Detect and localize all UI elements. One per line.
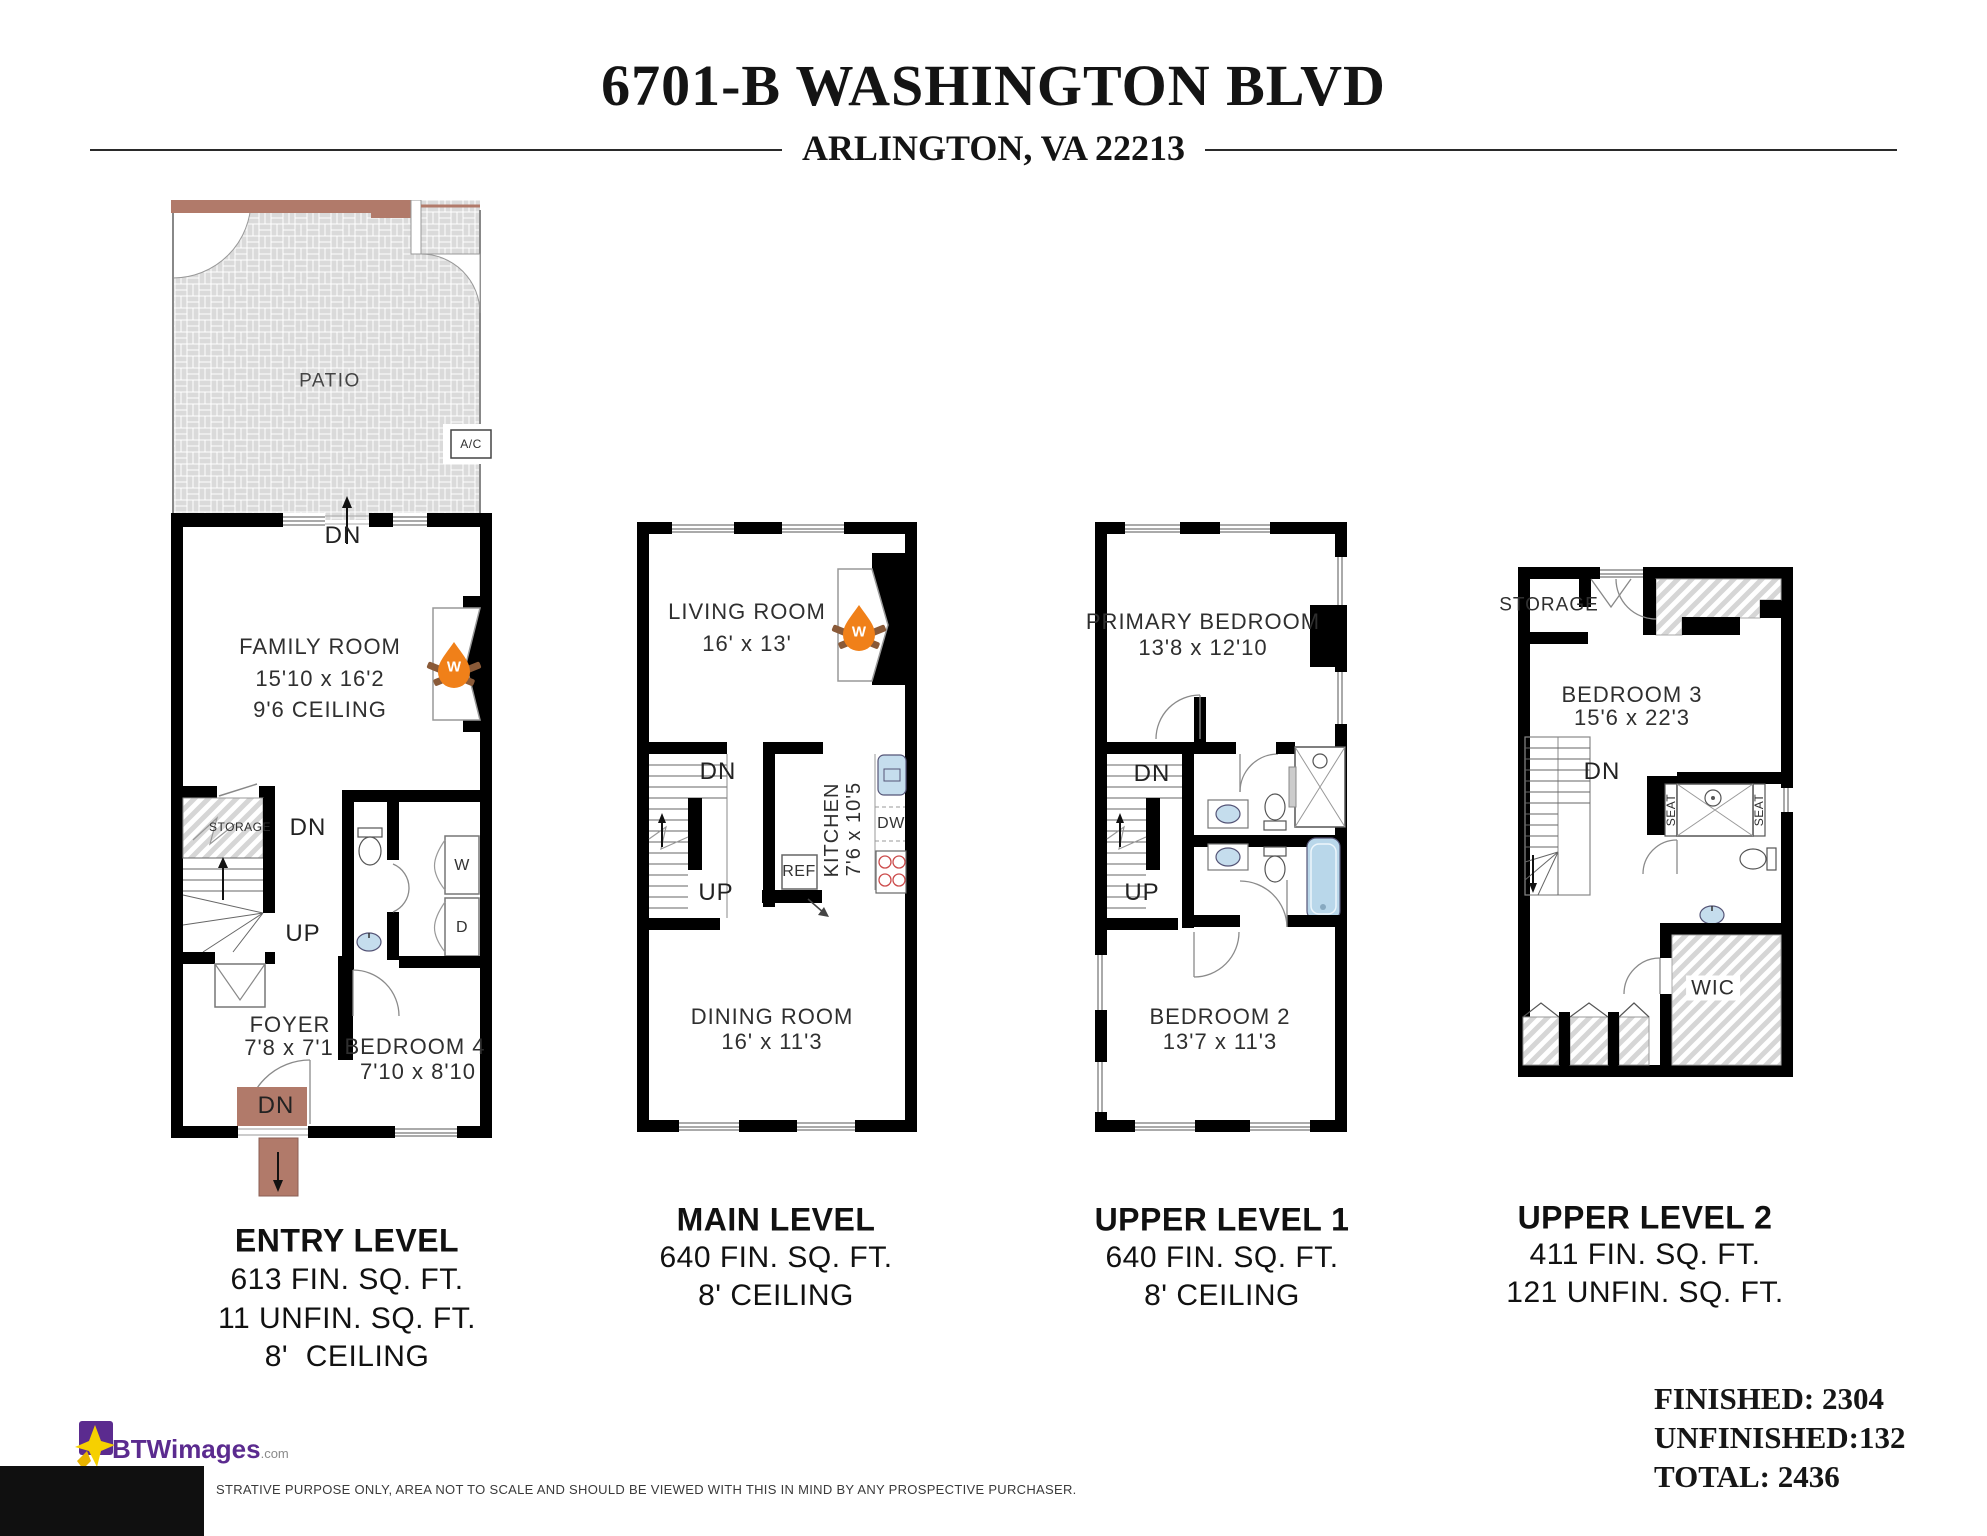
window (395, 1126, 457, 1138)
washer-label: W (454, 858, 470, 874)
toilet-icon (1264, 847, 1286, 882)
floor-plan-page: 6701-B WASHINGTON BLVD ARLINGTON, VA 222… (0, 0, 1987, 1536)
disclaimer-text: STRATIVE PURPOSE ONLY, AREA NOT TO SCALE… (216, 1482, 1077, 1497)
total-finished: FINISHED: 2304 (1654, 1379, 1905, 1418)
fireplace-w-label: W (852, 625, 866, 640)
window (393, 513, 427, 527)
bedroom4-dim: 7'10 x 8'10 (360, 1061, 476, 1083)
total-unfinished: UNFINISHED:132 (1654, 1418, 1905, 1457)
up-label-upper1: UP (1124, 881, 1159, 905)
page-title: 6701-B WASHINGTON BLVD (0, 52, 1987, 119)
ac-label: A/C (460, 438, 482, 450)
living-room-dim: 16' x 13' (702, 633, 792, 655)
foyer-label: FOYER (250, 1014, 331, 1036)
ref-label: REF (782, 864, 816, 880)
closet (215, 964, 265, 1007)
entry-level-finished: 613 FIN. SQ. FT. (230, 1263, 463, 1297)
bedroom4-label: BEDROOM 4 (344, 1036, 485, 1058)
sink-icon (878, 755, 906, 795)
primary-bedroom-door (1156, 695, 1206, 742)
laundry-closet (399, 790, 492, 968)
dn-label-patio: DN (325, 524, 362, 548)
dn-label-main: DN (700, 760, 737, 784)
dryer-label: D (456, 920, 468, 936)
storage-label-upper2: STORAGE (1499, 596, 1599, 615)
square-footage-totals: FINISHED: 2304 UNFINISHED:132 TOTAL: 243… (1654, 1379, 1905, 1496)
bedroom3-label: BEDROOM 3 (1561, 684, 1702, 706)
stairs (1525, 737, 1590, 895)
dn-label-upper2: DN (1584, 760, 1621, 784)
bathroom-bottom (1194, 838, 1347, 927)
kitchen-label: KITCHEN (822, 783, 842, 878)
unfinished-attic (1616, 579, 1781, 635)
dn-label-entry-door: DN (258, 1094, 295, 1118)
patio-area (171, 200, 499, 520)
page-subtitle: ARLINGTON, VA 22213 (782, 127, 1205, 169)
upper-level-1-caption: UPPER LEVEL 1 (1095, 1202, 1350, 1239)
upper-level-2-caption: UPPER LEVEL 2 (1518, 1200, 1773, 1237)
storage-label: STORAGE (209, 821, 271, 833)
bathtub-icon (1307, 838, 1340, 920)
seat-left-label: SEAT (1665, 794, 1677, 826)
bedroom3-dim: 15'6 x 22'3 (1574, 707, 1690, 729)
bright-mls-logo: brıght ✦ ™ MLS (0, 1466, 204, 1536)
dn-label-upper1: DN (1134, 762, 1171, 786)
bedroom2-label: BEDROOM 2 (1149, 1006, 1290, 1028)
vanity-sink-icon (1208, 844, 1248, 870)
dn-label-entry-stairs: DN (290, 816, 327, 840)
family-room-dim: 15'10 x 16'2 (255, 668, 384, 690)
family-room-ceiling: 9'6 CEILING (253, 699, 387, 721)
bathroom-top (1194, 742, 1347, 847)
sink-icon (1700, 906, 1724, 924)
stove-icon (876, 851, 906, 893)
seat-right-label: SEAT (1753, 794, 1765, 826)
dormers (1523, 1003, 1649, 1065)
window (283, 513, 325, 527)
title-divider: ARLINGTON, VA 22213 (90, 149, 1897, 193)
main-level-caption: MAIN LEVEL (677, 1202, 876, 1239)
living-room-label: LIVING ROOM (668, 601, 826, 623)
shower-icon (1665, 784, 1765, 836)
up-label-entry-stairs: UP (285, 922, 320, 946)
bedroom2-dim: 13'7 x 11'3 (1163, 1031, 1277, 1053)
toilet-icon (358, 828, 382, 865)
primary-bedroom-label: PRIMARY BEDROOM (1086, 611, 1320, 633)
dw-label: DW (877, 816, 905, 832)
dining-room-dim: 16' x 11'3 (721, 1031, 822, 1053)
main-level-ceiling: 8' CEILING (698, 1279, 854, 1313)
btw-tld: .com (261, 1446, 289, 1461)
entry-level-caption: ENTRY LEVEL (235, 1223, 459, 1260)
dining-room-label: DINING ROOM (691, 1006, 854, 1028)
fireplace-w-label: W (447, 660, 461, 675)
wic-label: WIC (1686, 976, 1740, 1001)
bedroom2-door (1194, 932, 1239, 977)
foyer-dim: 7'8 x 7'1 (244, 1037, 334, 1059)
kitchen-dim: 7'6 x 10'5 (844, 782, 864, 876)
entry-level-unfinished: 11 UNFIN. SQ. FT. (218, 1302, 476, 1336)
upper-level-2-unfinished: 121 UNFIN. SQ. FT. (1506, 1276, 1783, 1310)
patio-label: PATIO (299, 372, 361, 391)
powder-room (342, 790, 409, 970)
fireplace-icon (831, 553, 917, 685)
primary-bedroom-dim: 13'8 x 12'10 (1138, 637, 1267, 659)
total-all: TOTAL: 2436 (1654, 1457, 1905, 1496)
vanity-sink-icon (1208, 800, 1248, 828)
toilet-icon (1264, 794, 1286, 830)
upper-level-1-finished: 640 FIN. SQ. FT. (1105, 1241, 1338, 1275)
upper-level-2-finished: 411 FIN. SQ. FT. (1530, 1238, 1761, 1272)
family-room-label: FAMILY ROOM (239, 636, 401, 658)
up-label-main: UP (698, 881, 733, 905)
stairs (183, 784, 275, 964)
main-level-finished: 640 FIN. SQ. FT. (659, 1241, 892, 1275)
toilet-icon (1740, 848, 1776, 870)
entry-level-ceiling: 8' CEILING (265, 1340, 430, 1374)
sink-icon (357, 933, 381, 951)
shower-icon (1289, 747, 1345, 827)
upper-level-1-ceiling: 8' CEILING (1144, 1279, 1300, 1313)
btw-brand: BTWimages (112, 1434, 261, 1464)
btw-images-wordmark: BTWimages.com (112, 1434, 289, 1465)
